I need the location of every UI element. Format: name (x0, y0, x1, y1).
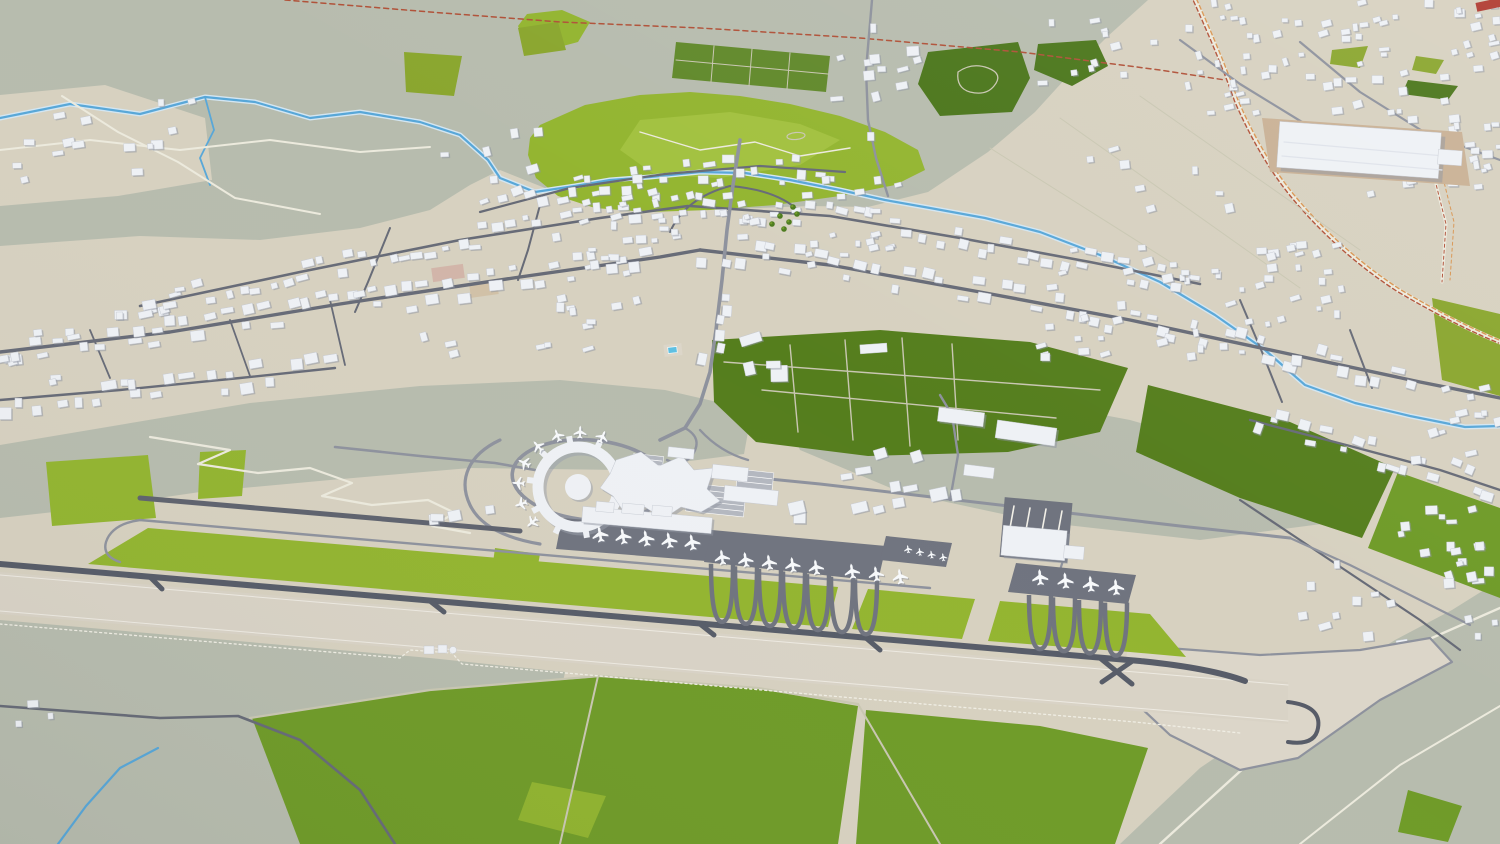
scene-svg (0, 0, 1500, 844)
airport-3d-map-render (0, 0, 1500, 844)
light-overlay (0, 0, 1500, 844)
